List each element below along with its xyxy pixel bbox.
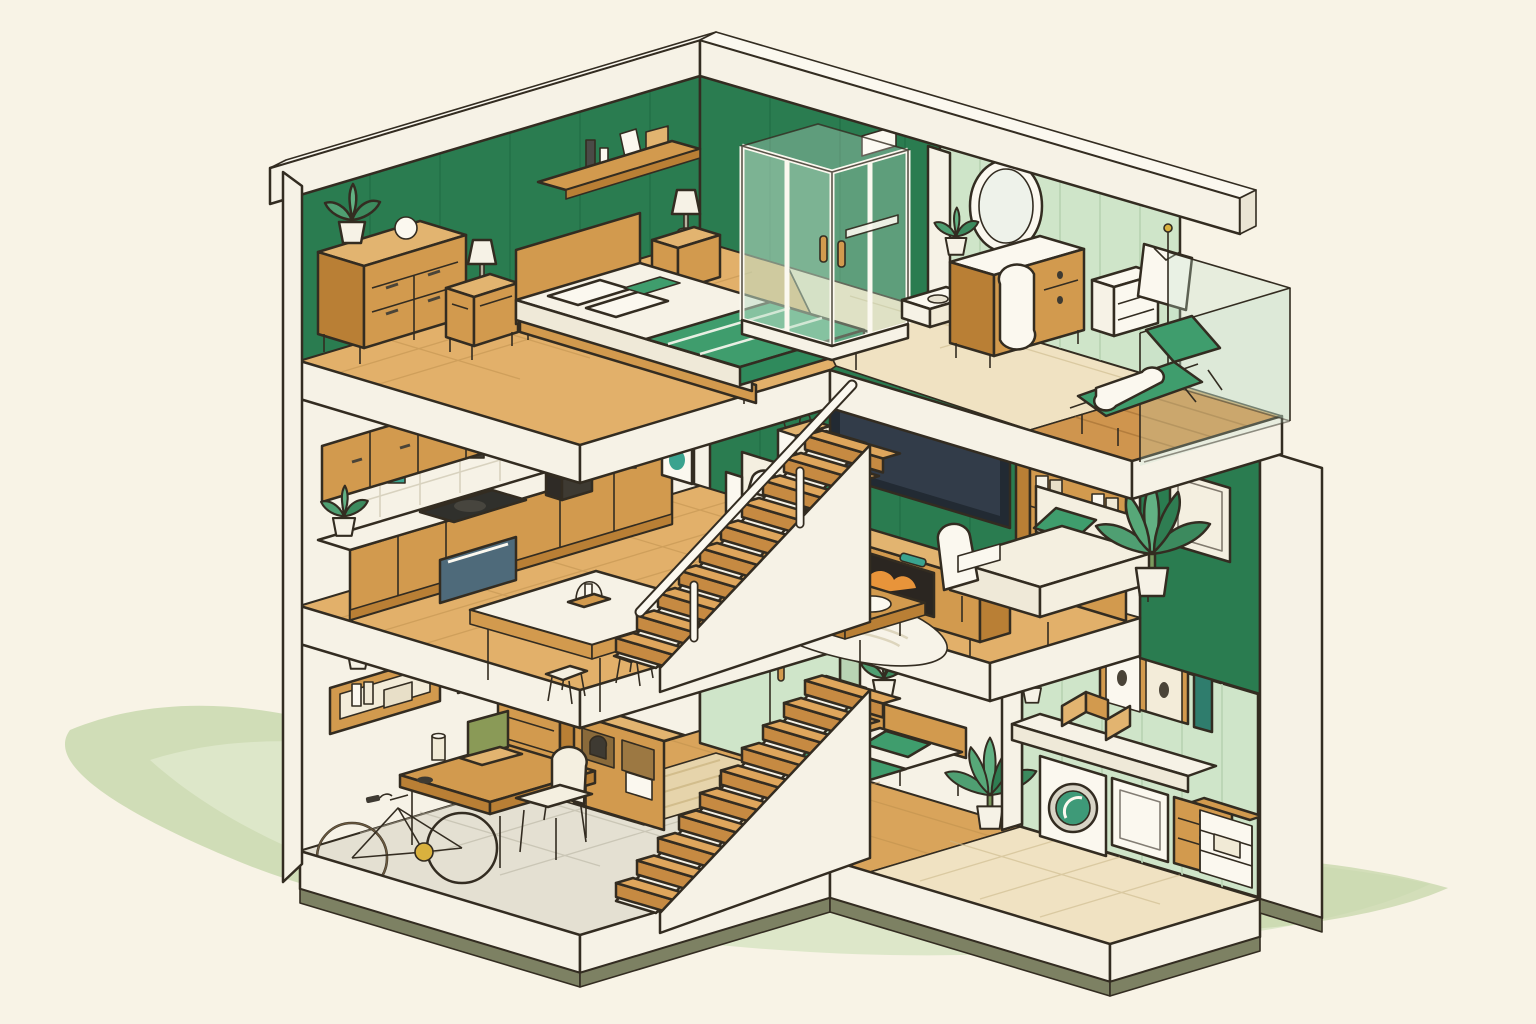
laundry-basket — [999, 265, 1035, 350]
decor-sphere — [395, 217, 417, 239]
glass-shower — [742, 124, 908, 360]
exterior-right-wall — [1260, 449, 1322, 932]
house-cutaway-illustration — [0, 0, 1536, 1024]
drinking-glass — [432, 734, 445, 761]
exterior-left-wall — [283, 172, 302, 882]
scene-canvas — [0, 0, 1536, 1024]
